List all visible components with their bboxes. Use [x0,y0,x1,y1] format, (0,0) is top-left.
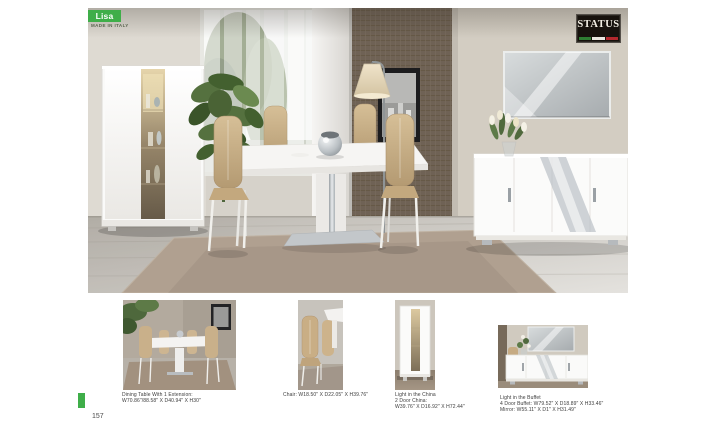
thumbnail-image-dining-table [123,300,236,390]
caption-line: W70.86"/88.58" X D40.94" X H30" [122,398,257,404]
caption-china: Light in the China 2 Door China: W39.76"… [395,392,507,410]
flag-green [579,37,591,40]
collection-subtitle: MADE IN ITALY [91,23,129,28]
china-cabinet [98,66,208,237]
page-edge-marker [78,393,85,408]
collection-name-badge: Lisa [88,10,121,22]
thumb-chair-scene [298,300,343,390]
caption-buffet: Light in the Buffet 4 Door Buffet: W79.5… [500,395,645,413]
caption-line: W39.76" X D16.92" X H72.44" [395,404,507,410]
room-scene-image: Lisa MADE IN ITALY STATUS [88,8,628,293]
catalog-page: Lisa MADE IN ITALY STATUS [0,0,720,428]
status-flag-stripe [577,37,620,42]
thumb-buffet-scene [498,325,588,388]
caption-line: Mirror: W55.11" X D1" X H31.49" [500,407,645,413]
room-scene [88,8,628,293]
caption-chair: Chair: W18.50" X D22.05" X H39.76" [283,392,403,398]
thumbnail-image-chair [298,300,343,390]
status-brand-name: STATUS [577,15,620,37]
flag-red [606,37,618,40]
thumbnail-image-buffet [498,325,588,388]
thumb-china-scene [395,300,435,390]
flag-white [592,37,604,40]
caption-line: Chair: W18.50" X D22.05" X H39.76" [283,392,403,398]
wall-mirror [504,52,610,118]
status-brand-logo: STATUS [576,14,621,43]
thumbnail-image-china [395,300,435,390]
caption-dining-table: Dining Table With 1 Extension: W70.86"/8… [122,392,257,404]
page-number: 157 [92,413,104,420]
ceiling-shadow [88,8,628,38]
thumb-dining-table-scene [123,300,236,390]
